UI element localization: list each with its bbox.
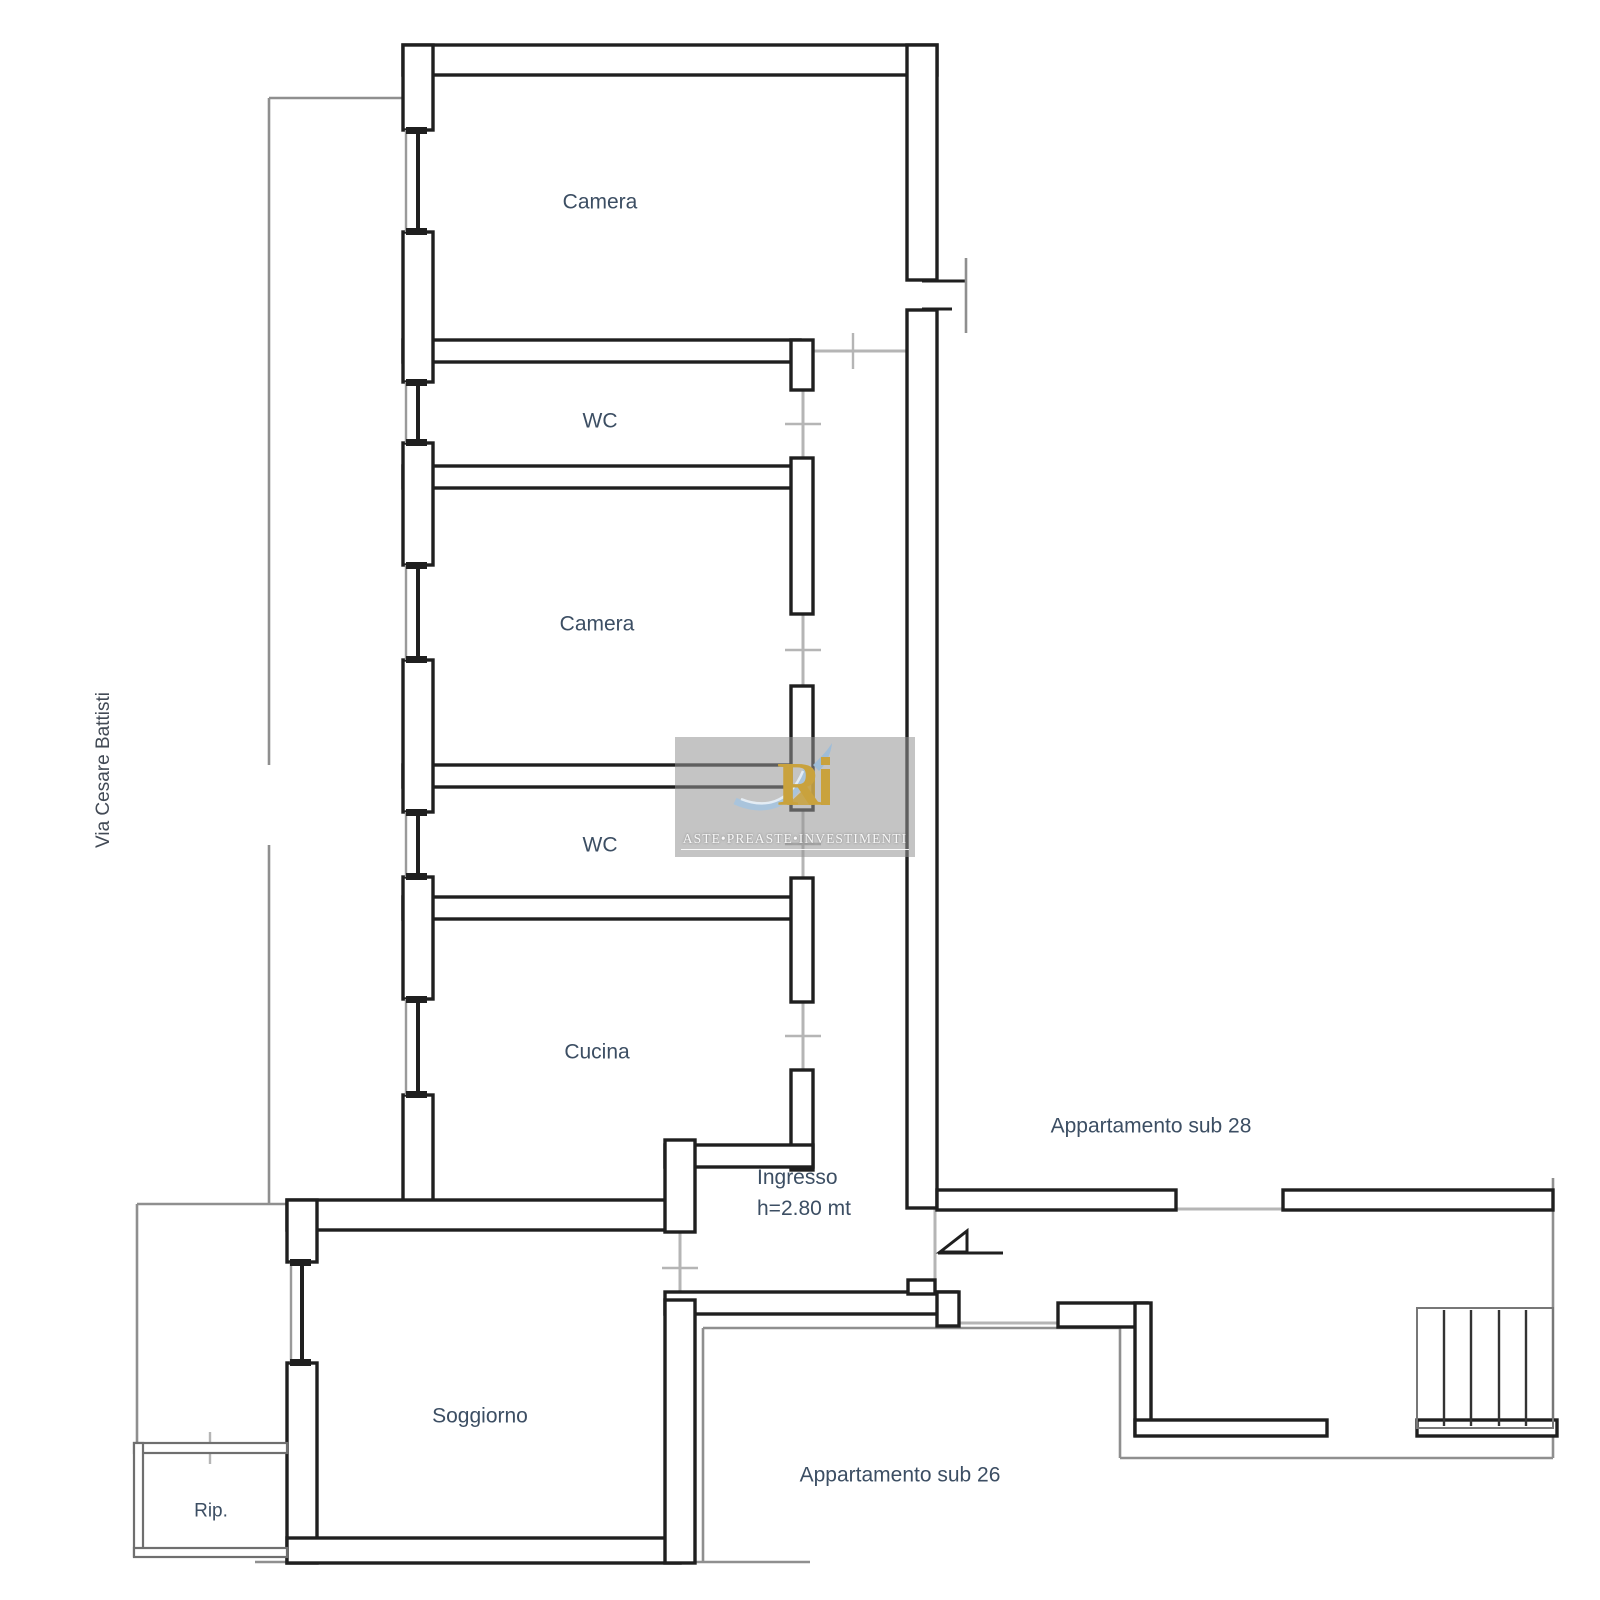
- watermark-brand-text: ASTE•PREASTE•INVESTIMENTI: [681, 831, 909, 850]
- exterior-walls: [287, 45, 1553, 1563]
- room-label-ingresso-block: Ingresso h=2.80 mt: [757, 1162, 851, 1224]
- watermark: R ASTE•PREASTE•INVESTIMENTI: [675, 737, 915, 857]
- room-label-rip: Rip.: [194, 1501, 228, 1524]
- floor-plan-page: Camera WC Camera WC Cucina Soggiorno Rip…: [0, 0, 1600, 1600]
- room-label-camera-top: Camera: [563, 189, 638, 214]
- label-apartment-sub-26: Appartamento sub 26: [800, 1462, 1001, 1487]
- svg-text:R: R: [777, 751, 823, 819]
- room-label-wc-mid: WC: [583, 832, 618, 857]
- room-label-cucina: Cucina: [564, 1039, 629, 1064]
- street-label: Via Cesare Battisti: [93, 692, 115, 848]
- room-label-wc-top: WC: [583, 408, 618, 433]
- room-label-soggiorno: Soggiorno: [432, 1403, 528, 1428]
- ceiling-height-label: h=2.80 mt: [757, 1193, 851, 1224]
- stairs: [1417, 1308, 1553, 1428]
- room-label-ingresso: Ingresso: [757, 1162, 851, 1193]
- label-apartment-sub-28: Appartamento sub 28: [1051, 1113, 1252, 1138]
- lower-walls: [665, 1280, 1557, 1436]
- room-label-camera-mid: Camera: [560, 611, 635, 636]
- watermark-logo: R: [675, 739, 915, 823]
- entrance-arrow-icon: [938, 1231, 1003, 1253]
